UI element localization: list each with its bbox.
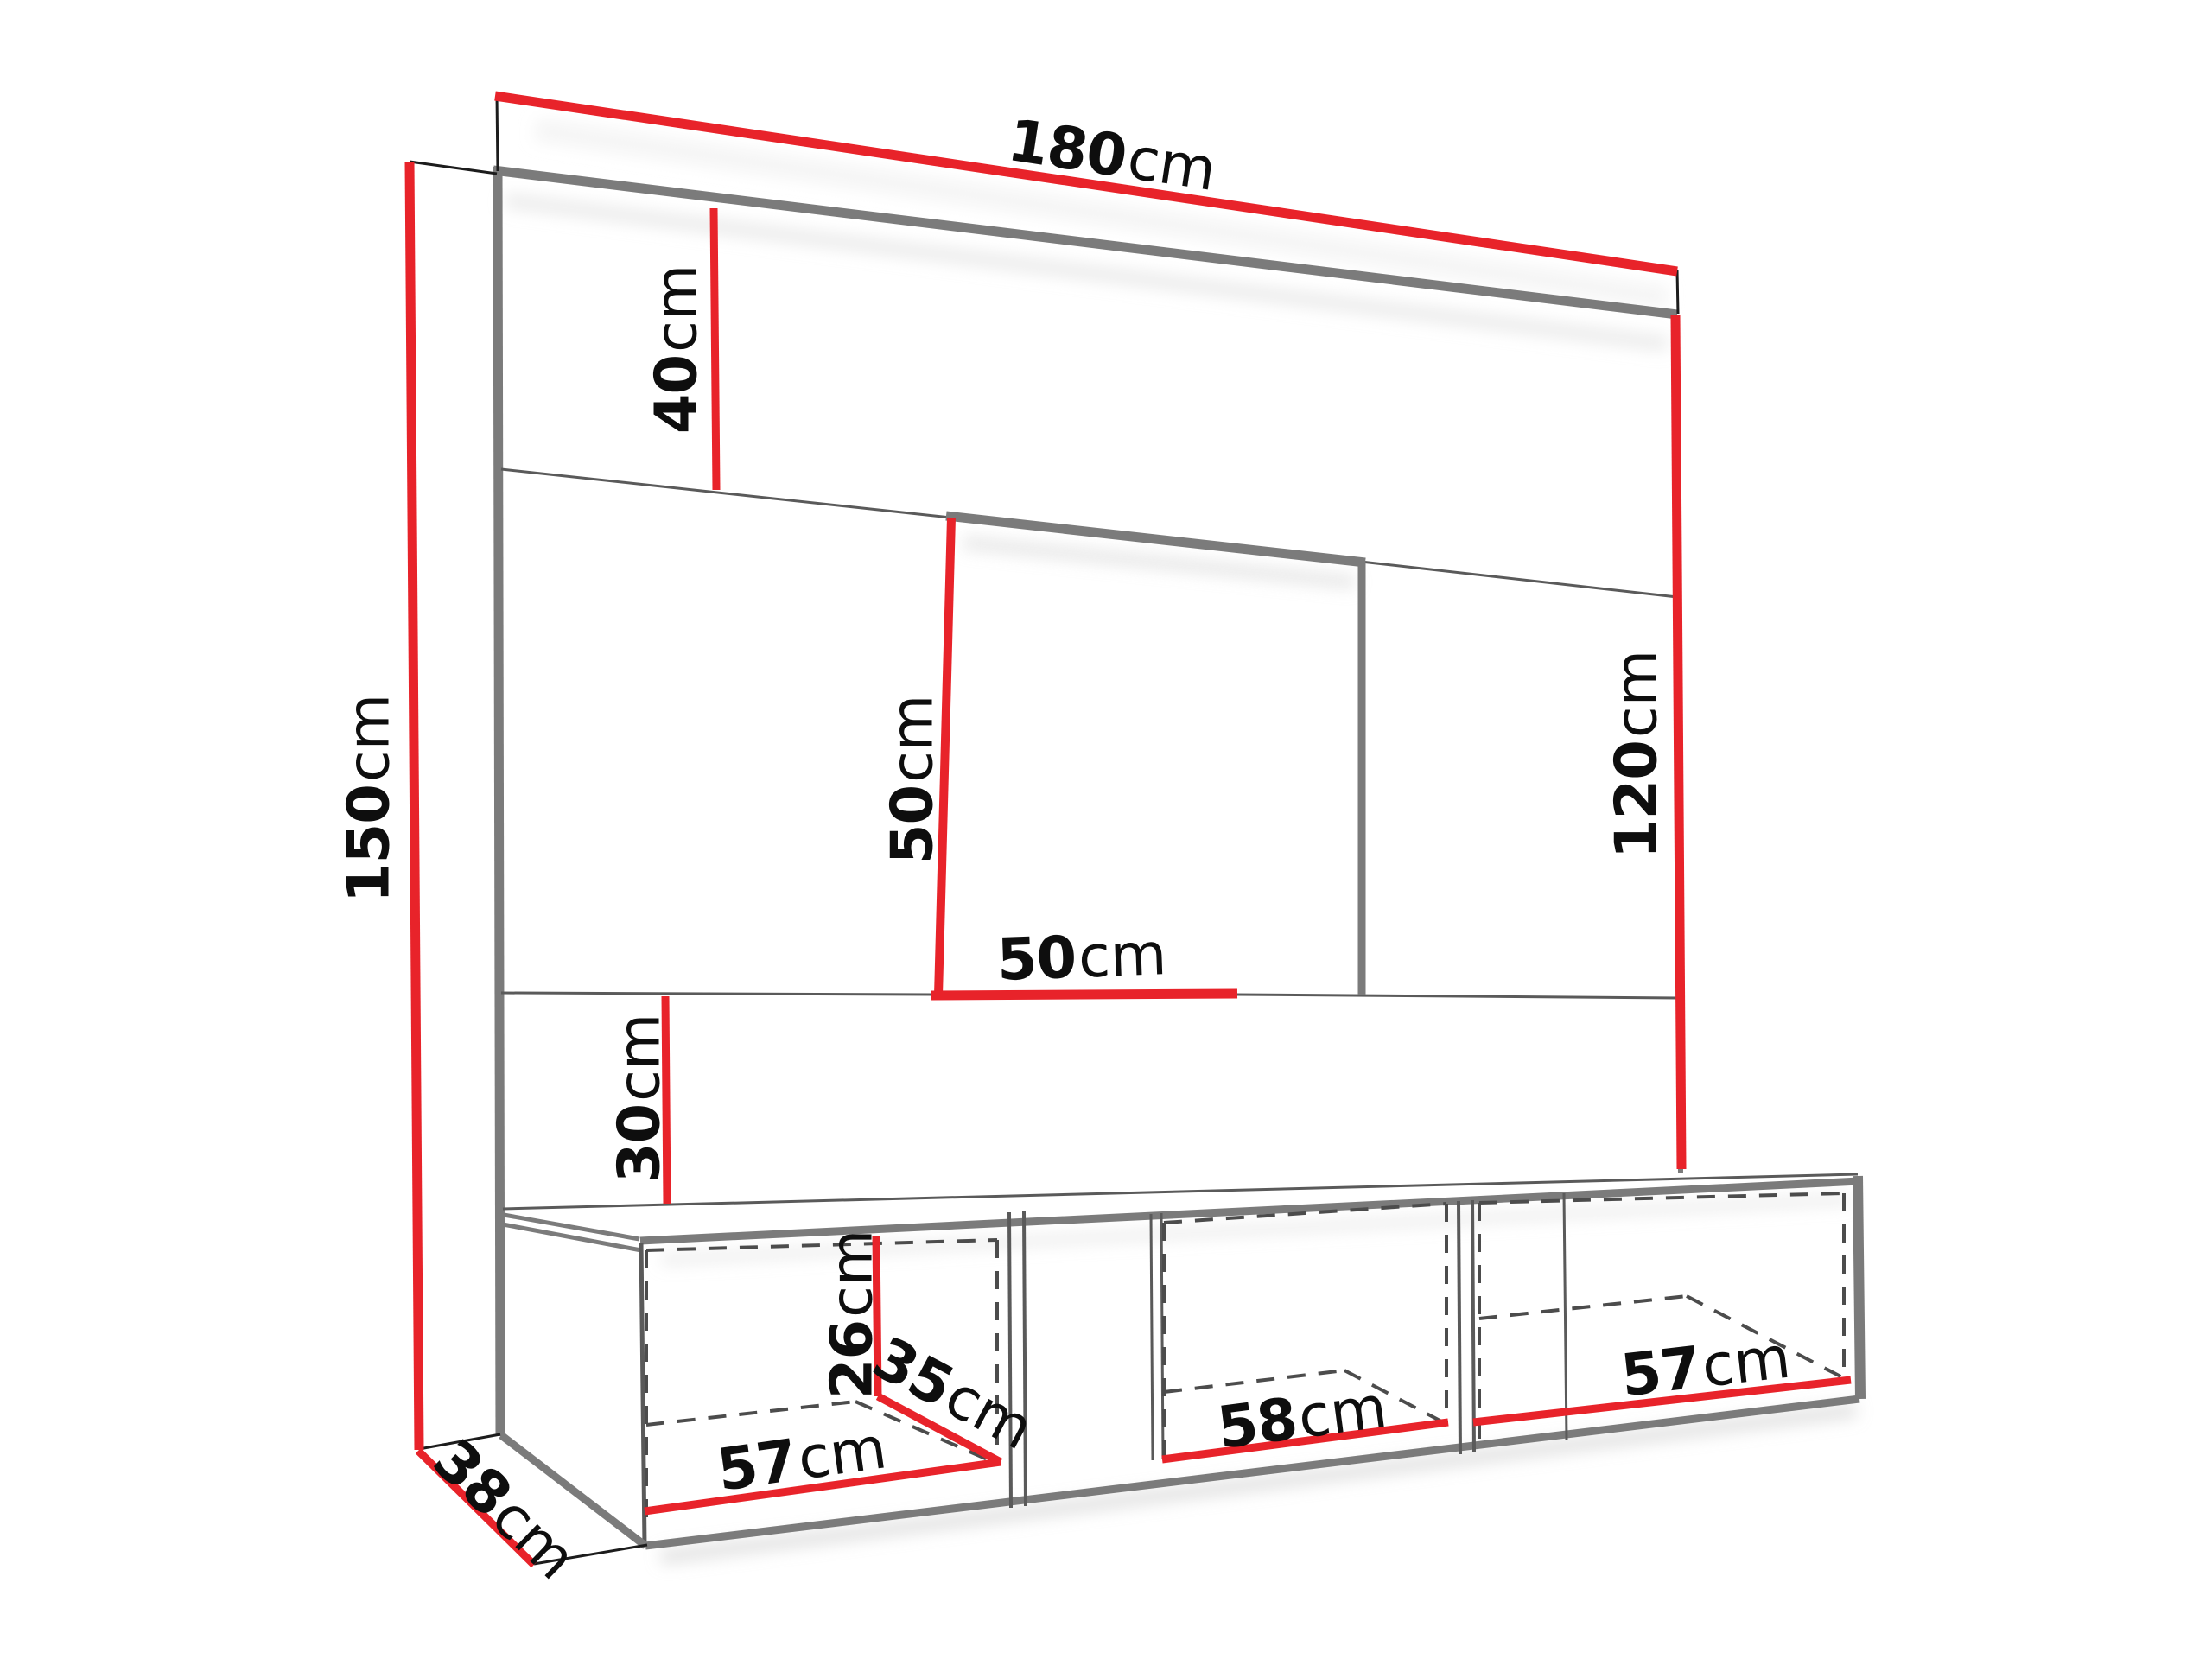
- dim-unit: cm: [606, 1014, 673, 1102]
- dim-line-50w: [931, 994, 1237, 995]
- dim-unit: cm: [1077, 920, 1168, 991]
- panel-grooves: [501, 469, 1678, 998]
- dim-label-lower-gap-height: 30cm: [611, 1014, 669, 1183]
- dim-label-right-panel-height: 120cm: [1608, 650, 1666, 859]
- dim-label-niche-height: 50cm: [884, 695, 942, 864]
- cabinet-front-left-edge: [641, 1243, 645, 1545]
- diagram-linework: [0, 0, 2212, 1659]
- divider2-left: [1459, 1201, 1460, 1454]
- dim-label-total-height: 150cm: [340, 694, 398, 903]
- cabinet-right-edge: [1858, 1176, 1860, 1399]
- dim-unit: cm: [818, 1230, 886, 1318]
- dim-value: 120: [1603, 741, 1670, 859]
- comp3-inner-wall: [1564, 1193, 1567, 1440]
- divider2-right: [1472, 1200, 1474, 1452]
- divider1-right: [1024, 1211, 1026, 1506]
- dim-value: 57: [1618, 1334, 1703, 1410]
- dim-unit: cm: [1123, 124, 1221, 204]
- niche-top-edge: [946, 516, 1365, 563]
- dim-unit: cm: [335, 694, 403, 782]
- dimension-diagram: 180cm 40cm 150cm 50cm 50cm 120cm 30cm 26…: [0, 0, 2212, 1659]
- dim-unit: cm: [794, 1414, 891, 1492]
- dim-unit: cm: [1294, 1373, 1390, 1452]
- dim-value: 50: [996, 924, 1077, 994]
- groove-40cm-right: [1361, 562, 1677, 597]
- dim-value: 30: [606, 1104, 673, 1183]
- dim-unit: cm: [879, 695, 946, 783]
- dim-label-niche-width: 50cm: [996, 925, 1168, 989]
- dim-unit: cm: [1699, 1324, 1794, 1401]
- comp2-inner-wall-a: [1151, 1214, 1153, 1460]
- groove-lower-left: [501, 993, 933, 995]
- dim-line-150: [410, 162, 419, 1450]
- dim-label-top-shelf-height: 40cm: [648, 264, 706, 434]
- dim-unit: cm: [1603, 650, 1670, 738]
- panel-left-edge: [498, 167, 500, 1436]
- dim-value: 40: [643, 355, 710, 434]
- groove-lower-right: [1236, 995, 1678, 998]
- dim-line-120: [1675, 315, 1681, 1169]
- divider1-left: [1009, 1212, 1011, 1508]
- dim-value: 150: [335, 785, 403, 903]
- groove-40cm-left: [501, 469, 950, 518]
- dim-value: 50: [879, 785, 946, 864]
- dim-value: 58: [1214, 1385, 1301, 1462]
- dim-line-40: [714, 208, 716, 490]
- dim-value: 57: [713, 1427, 800, 1504]
- dim-unit: cm: [643, 264, 710, 353]
